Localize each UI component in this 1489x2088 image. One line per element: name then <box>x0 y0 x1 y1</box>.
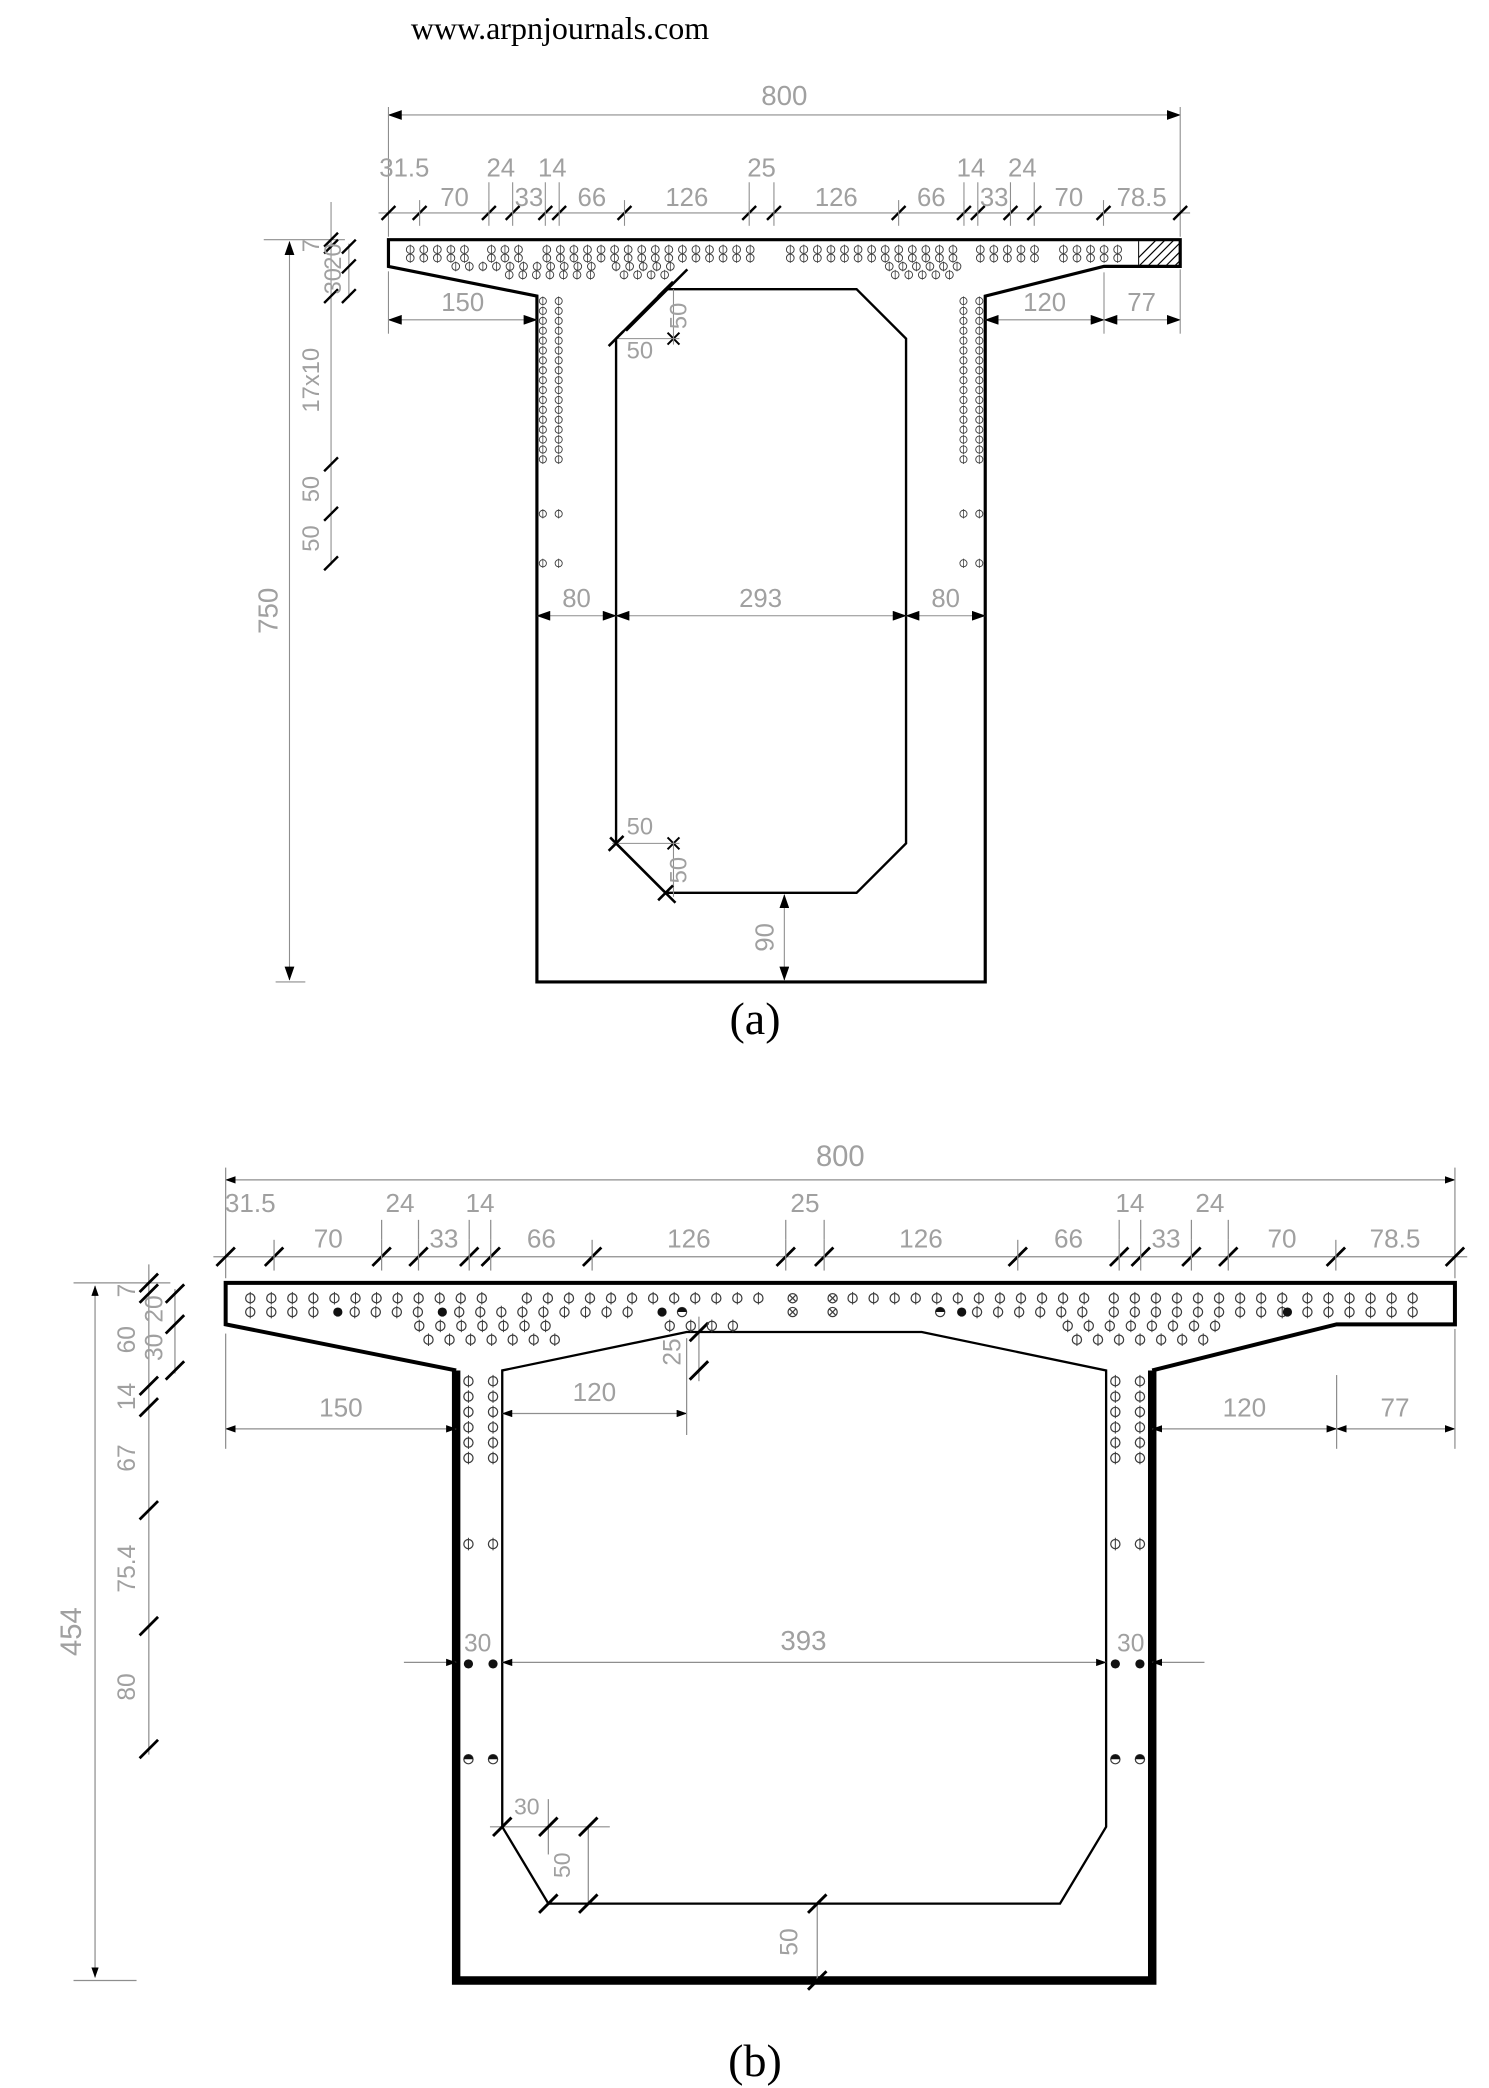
dim-overall-height: 750 <box>253 588 284 634</box>
dim-bottom-slab: 50 <box>776 1928 803 1955</box>
tick-marks-b <box>140 1220 1465 1990</box>
section-b-geometry <box>226 1283 1455 1981</box>
dim-cantilever: 150 <box>441 289 484 317</box>
dim-label: 14 <box>538 154 567 182</box>
dim-void: 393 <box>780 1625 826 1656</box>
dim-cantilever: 150 <box>319 1393 363 1423</box>
dim-label: 120 <box>1223 1393 1267 1423</box>
dim-label: 14 <box>1115 1188 1144 1218</box>
dim-label: 50 <box>298 476 325 502</box>
dim-label: 14 <box>114 1383 141 1410</box>
dim-label: 20 <box>320 243 347 269</box>
dim-haunch-rise: 25 <box>659 1338 686 1365</box>
dim-label: 33 <box>515 184 544 212</box>
section-a-geometry <box>388 240 1180 982</box>
dim-label: 50 <box>298 525 325 551</box>
dim-label: 20 <box>142 1295 169 1322</box>
dim-label: 70 <box>314 1224 343 1254</box>
dim-label: 30 <box>142 1334 169 1361</box>
dim-web: 80 <box>931 585 960 613</box>
dim-label: 75.4 <box>114 1545 141 1593</box>
girder-cross-section-b: 800 31.5 24 14 25 14 24 70 33 66 126 126… <box>50 1100 1480 2045</box>
dim-label: 33 <box>1152 1224 1181 1254</box>
dim-label: 31.5 <box>225 1188 276 1218</box>
dim-label: 33 <box>429 1224 458 1254</box>
dim-label: 25 <box>790 1188 819 1218</box>
dim-label: 30 <box>320 268 347 294</box>
dim-label: 24 <box>1195 1188 1224 1218</box>
dim-label: 33 <box>980 184 1009 212</box>
dim-label: 77 <box>1127 289 1156 317</box>
journal-url-header: www.arpnjournals.com <box>350 10 770 47</box>
inner-void-outline <box>502 1332 1106 1904</box>
section-b-dimension-lines <box>74 1168 1468 1981</box>
dim-label: 66 <box>527 1224 556 1254</box>
section-b-dimension-labels: 800 31.5 24 14 25 14 24 70 33 66 126 126… <box>56 1141 1420 1956</box>
dim-label: 120 <box>1023 289 1066 317</box>
dim-overall-width: 800 <box>816 1141 865 1173</box>
dim-label: 60 <box>114 1326 141 1353</box>
dim-label: 14 <box>957 154 986 182</box>
caption-a: (a) <box>695 992 815 1045</box>
dim-label: 126 <box>815 184 858 212</box>
dim-chamfer: 50 <box>627 813 653 840</box>
dim-web: 30 <box>464 1631 491 1658</box>
dim-label: 66 <box>917 184 946 212</box>
dim-label: 70 <box>1268 1224 1297 1254</box>
girder-cross-section-a: 800 31.5 24 14 25 14 24 70 33 66 126 126… <box>240 96 1200 992</box>
dim-chamfer: 50 <box>665 857 692 883</box>
dim-label: 66 <box>1054 1224 1083 1254</box>
web-and-bottom-outline <box>456 1370 1152 1980</box>
dim-label: 78.5 <box>1370 1224 1421 1254</box>
dim-label: 17x10 <box>298 348 325 413</box>
outer-outline <box>388 240 1180 982</box>
dim-chamfer: 50 <box>665 303 692 329</box>
dim-label: 24 <box>1008 154 1037 182</box>
dim-label: 66 <box>578 184 607 212</box>
dim-label: 31.5 <box>379 154 429 182</box>
dim-overall-width: 800 <box>761 80 807 111</box>
dim-chamfer: 30 <box>514 1794 540 1820</box>
dim-label: 25 <box>747 154 776 182</box>
dim-web: 30 <box>1117 1631 1144 1658</box>
rebar-dots-a <box>406 245 1121 568</box>
dim-label: 126 <box>667 1224 711 1254</box>
dim-overall-height: 454 <box>56 1607 88 1656</box>
hatch-patch <box>1139 240 1181 267</box>
dim-label: 67 <box>114 1444 141 1471</box>
dim-label: 70 <box>440 184 469 212</box>
dim-label: 78.5 <box>1117 184 1167 212</box>
dim-label: 24 <box>386 1188 415 1218</box>
caption-b: (b) <box>695 2034 815 2087</box>
dim-bottom-slab: 90 <box>751 923 779 952</box>
dim-label: 126 <box>665 184 708 212</box>
dim-label: 77 <box>1380 1393 1409 1423</box>
dim-chamfer: 50 <box>549 1852 575 1878</box>
dim-web: 80 <box>562 585 591 613</box>
dim-label: 80 <box>114 1673 141 1700</box>
dim-label: 7 <box>114 1284 141 1298</box>
dim-void: 293 <box>739 585 782 613</box>
dim-label: 14 <box>465 1188 494 1218</box>
dim-haunch: 120 <box>573 1377 617 1407</box>
dim-label: 24 <box>486 154 515 182</box>
dim-label: 70 <box>1055 184 1084 212</box>
dim-chamfer: 50 <box>627 337 653 364</box>
dim-label: 126 <box>899 1224 943 1254</box>
flange-outline <box>226 1283 1455 1371</box>
